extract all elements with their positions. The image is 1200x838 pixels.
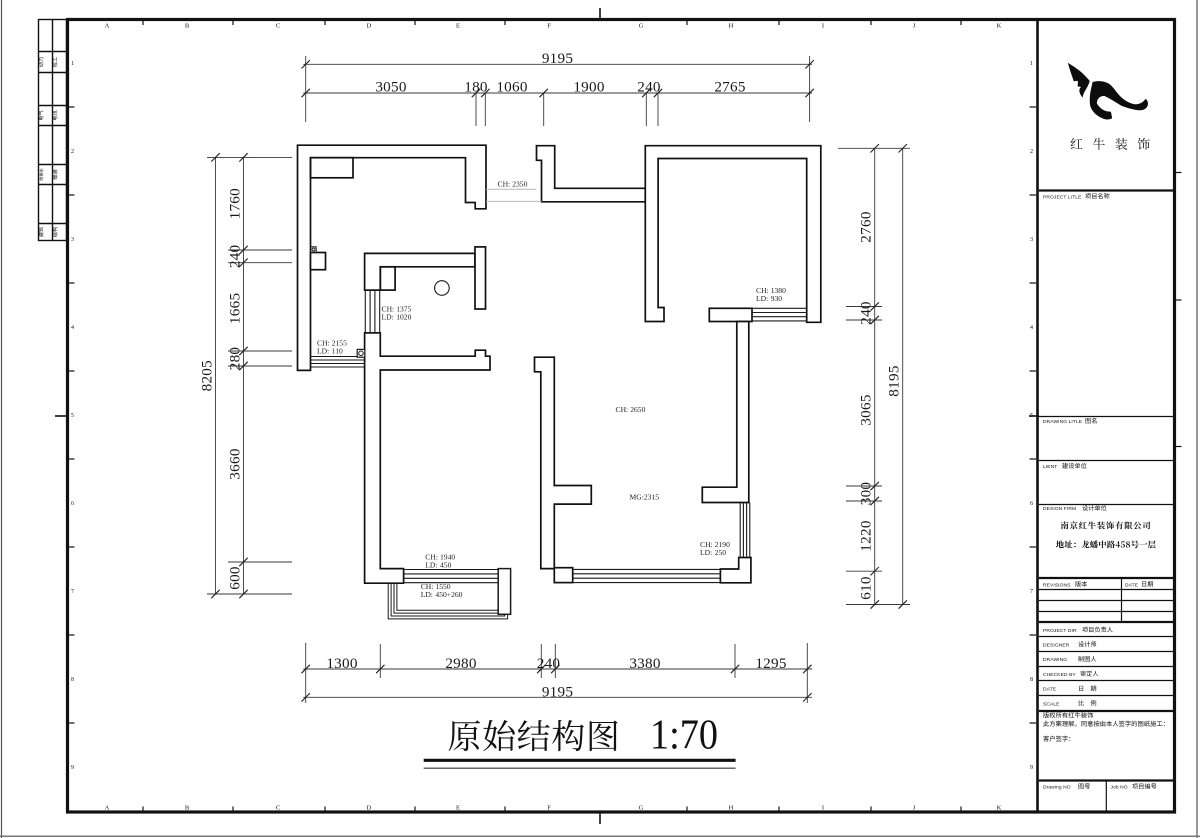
svg-text:G: G <box>639 805 644 812</box>
svg-text:2765: 2765 <box>714 79 745 96</box>
svg-text:250: 250 <box>715 548 727 557</box>
svg-text:1060: 1060 <box>496 79 528 96</box>
svg-text:LD:: LD: <box>382 313 394 322</box>
svg-text:LD:: LD: <box>700 548 712 557</box>
svg-text:610: 610 <box>858 576 875 600</box>
svg-text:3065: 3065 <box>858 394 875 425</box>
svg-text:450+260: 450+260 <box>435 590 462 599</box>
svg-text:8195: 8195 <box>886 365 903 396</box>
svg-text:REVISIONS: REVISIONS <box>1043 582 1071 588</box>
svg-text:8: 8 <box>1030 677 1033 683</box>
svg-text:PROJECT LITLE: PROJECT LITLE <box>1043 194 1082 200</box>
svg-text:9: 9 <box>1030 765 1033 771</box>
svg-text:3380: 3380 <box>629 655 661 672</box>
svg-text:A: A <box>105 805 110 812</box>
svg-text:K: K <box>997 23 1002 30</box>
svg-text:7: 7 <box>71 589 74 595</box>
svg-text:DRAWING: DRAWING <box>1043 657 1067 663</box>
svg-text:2: 2 <box>1030 149 1033 155</box>
svg-text:3: 3 <box>1030 237 1033 243</box>
svg-text:LD:: LD: <box>421 590 433 599</box>
svg-text:CH:: CH: <box>616 405 629 414</box>
svg-text:DATE: DATE <box>1125 582 1139 588</box>
svg-text:930: 930 <box>771 294 783 303</box>
svg-text:240: 240 <box>537 655 561 672</box>
svg-text:LD:: LD: <box>425 561 437 570</box>
svg-text:6: 6 <box>71 501 74 507</box>
svg-text:F: F <box>547 805 551 812</box>
svg-text:180: 180 <box>464 79 488 96</box>
svg-text:I: I <box>822 805 824 812</box>
svg-text:LD:: LD: <box>317 347 329 356</box>
svg-text:3: 3 <box>71 237 74 243</box>
svg-text:H: H <box>729 805 734 812</box>
svg-text:CH:: CH: <box>498 180 511 189</box>
svg-text:SCALE: SCALE <box>1043 701 1060 707</box>
svg-text:240: 240 <box>858 301 875 325</box>
svg-text:8: 8 <box>71 677 74 683</box>
svg-text:Job NO: Job NO <box>1111 785 1128 791</box>
svg-text:450: 450 <box>440 561 452 570</box>
svg-text:DESIGN FIRM: DESIGN FIRM <box>1043 506 1076 512</box>
svg-text:1: 1 <box>1030 61 1033 67</box>
svg-text:1300: 1300 <box>326 655 358 672</box>
svg-text:C: C <box>276 805 280 812</box>
svg-text:F: F <box>547 23 551 30</box>
svg-text:240: 240 <box>637 79 661 96</box>
svg-text:LIENT: LIENT <box>1043 464 1057 470</box>
svg-text:B: B <box>185 23 190 30</box>
svg-text:9195: 9195 <box>542 683 573 700</box>
svg-text:2650: 2650 <box>630 405 645 414</box>
svg-text:CHECKED BY: CHECKED BY <box>1043 672 1076 678</box>
svg-text:D: D <box>367 23 372 30</box>
svg-text:4: 4 <box>1030 325 1033 331</box>
svg-text:1:70: 1:70 <box>650 713 718 759</box>
svg-text:9195: 9195 <box>542 50 573 67</box>
svg-text:1295: 1295 <box>755 655 786 672</box>
svg-text:240: 240 <box>227 244 244 268</box>
svg-text:2: 2 <box>71 149 74 155</box>
svg-text:I: I <box>822 23 824 30</box>
svg-text:1760: 1760 <box>227 188 244 220</box>
svg-text:1020: 1020 <box>396 313 411 322</box>
svg-text:600: 600 <box>227 566 244 590</box>
svg-text:Drawing NO: Drawing NO <box>1043 785 1071 791</box>
svg-text:1900: 1900 <box>573 79 605 96</box>
svg-text:3050: 3050 <box>375 79 407 96</box>
svg-text:9: 9 <box>71 765 74 771</box>
svg-text:2980: 2980 <box>445 655 477 672</box>
svg-text:DATE: DATE <box>1043 687 1057 693</box>
svg-text:3660: 3660 <box>227 448 244 480</box>
svg-text:1665: 1665 <box>227 293 244 324</box>
svg-text:D: D <box>367 805 372 812</box>
svg-text:A: A <box>105 23 110 30</box>
svg-text:C: C <box>276 23 280 30</box>
svg-text:7: 7 <box>1030 589 1033 595</box>
svg-text:2350: 2350 <box>512 180 527 189</box>
svg-text:5: 5 <box>71 413 74 419</box>
svg-text:K: K <box>997 805 1002 812</box>
svg-text:MG:2315: MG:2315 <box>630 493 660 502</box>
svg-text:2760: 2760 <box>858 211 875 243</box>
svg-text:DESIGNER: DESIGNER <box>1043 643 1070 649</box>
svg-text:E: E <box>456 23 460 30</box>
svg-text:280: 280 <box>227 347 244 371</box>
svg-text:1: 1 <box>71 61 74 67</box>
svg-text:6: 6 <box>1030 501 1033 507</box>
svg-text:1220: 1220 <box>858 520 875 552</box>
svg-text:DRAWING LITLE: DRAWING LITLE <box>1043 419 1083 425</box>
svg-text:8205: 8205 <box>199 360 216 391</box>
svg-text:G: G <box>639 23 644 30</box>
svg-text:300: 300 <box>858 482 875 506</box>
svg-text:110: 110 <box>332 347 343 356</box>
svg-text:H: H <box>729 23 734 30</box>
svg-text:PROJECT DIR: PROJECT DIR <box>1043 628 1077 634</box>
svg-text:LD:: LD: <box>756 294 768 303</box>
svg-text:B: B <box>185 805 190 812</box>
svg-text:E: E <box>456 805 460 812</box>
svg-text:4: 4 <box>71 325 74 331</box>
